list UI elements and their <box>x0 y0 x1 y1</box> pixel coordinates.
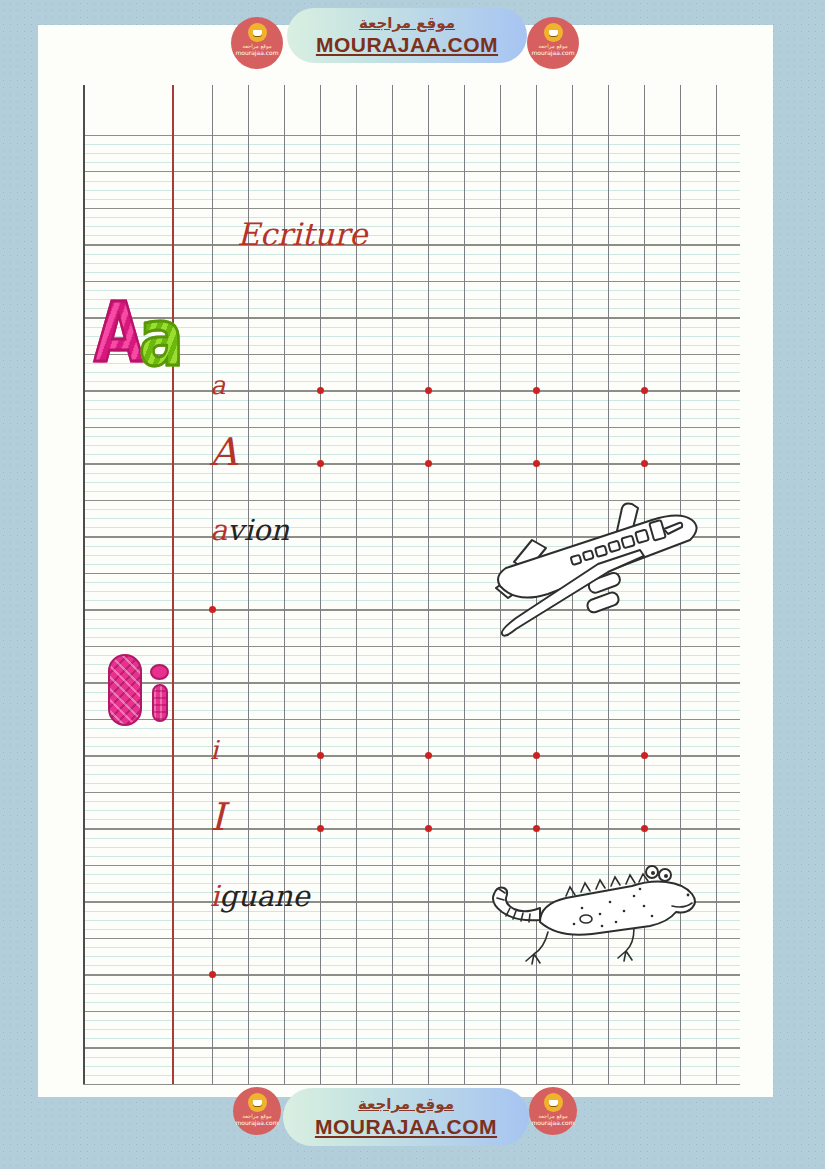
word-first-letter: a <box>210 513 227 547</box>
site-name-arabic[interactable]: موقع مراجعة <box>283 1096 529 1113</box>
guide-dot <box>641 825 648 832</box>
model-letter-i: i <box>210 735 218 765</box>
iguana-body <box>540 882 695 935</box>
site-link-pill[interactable]: موقع مراجعة MOURAJAA.COM <box>287 8 527 63</box>
guide-dot <box>425 460 432 467</box>
iguana-front-leg <box>618 928 634 961</box>
guide-dot <box>641 387 648 394</box>
badge-site-domain: mourajaa.com <box>235 50 278 57</box>
display-letter-a: a <box>139 299 184 377</box>
guide-dot <box>533 460 540 467</box>
display-letter-I <box>108 654 142 726</box>
iguana-pupil <box>664 874 668 878</box>
badge-site-domain: mourajaa.com <box>531 1120 574 1127</box>
word-rest: vion <box>227 513 289 547</box>
guide-dot <box>425 752 432 759</box>
site-logo-badge-right: موقع مراجعة mourajaa.com <box>529 1087 577 1135</box>
site-url[interactable]: MOURAJAA.COM <box>287 33 527 56</box>
site-url[interactable]: MOURAJAA.COM <box>283 1115 529 1138</box>
iguana-figure <box>482 856 702 968</box>
red-margin-line <box>172 85 174 1084</box>
model-word-iguane: iguane <box>210 879 310 913</box>
iguana-pupil <box>651 871 655 875</box>
guide-dot <box>641 460 648 467</box>
model-letter-A: A <box>210 430 237 474</box>
model-letter-a: a <box>210 370 226 400</box>
guide-dot <box>317 752 324 759</box>
model-letter-I: I <box>210 795 225 839</box>
site-logo-badge-left: موقع مراجعة mourajaa.com <box>233 1087 281 1135</box>
guide-dot <box>425 825 432 832</box>
guide-dot <box>533 387 540 394</box>
book-logo-icon <box>248 23 267 42</box>
book-logo-icon <box>544 23 563 42</box>
guide-dot <box>209 606 216 613</box>
iguana-tail <box>493 888 540 921</box>
word-first-letter: i <box>210 879 219 913</box>
guide-dot <box>209 971 216 978</box>
worksheet-page: موقع مراجعة mourajaa.com موقع مراجعة MOU… <box>0 0 825 1169</box>
site-logo-badge-left: موقع مراجعة mourajaa.com <box>231 17 283 69</box>
book-logo-icon <box>544 1093 563 1112</box>
display-letter-i <box>152 684 168 722</box>
airplane-figure <box>492 498 717 648</box>
guide-dot <box>317 825 324 832</box>
guide-dot <box>533 825 540 832</box>
guide-dot <box>317 460 324 467</box>
badge-site-domain: mourajaa.com <box>235 1120 278 1127</box>
display-letter-i-dot <box>150 664 169 680</box>
guide-dot <box>641 752 648 759</box>
display-letter-A: A <box>94 292 144 374</box>
guide-dot <box>317 387 324 394</box>
iguana-hind-leg <box>526 932 548 964</box>
site-name-arabic[interactable]: موقع مراجعة <box>287 15 527 32</box>
paper-edge-line <box>83 85 85 1084</box>
book-logo-icon <box>248 1093 267 1112</box>
iguana-nostril <box>687 894 690 897</box>
site-logo-badge-right: موقع مراجعة mourajaa.com <box>527 17 579 69</box>
badge-site-domain: mourajaa.com <box>531 50 574 57</box>
guide-dot <box>533 752 540 759</box>
worksheet-title: Ecriture <box>237 216 367 252</box>
model-word-avion: avion <box>210 513 289 547</box>
guide-dot <box>425 387 432 394</box>
word-rest: guane <box>219 879 309 913</box>
site-link-pill[interactable]: موقع مراجعة MOURAJAA.COM <box>283 1088 529 1146</box>
